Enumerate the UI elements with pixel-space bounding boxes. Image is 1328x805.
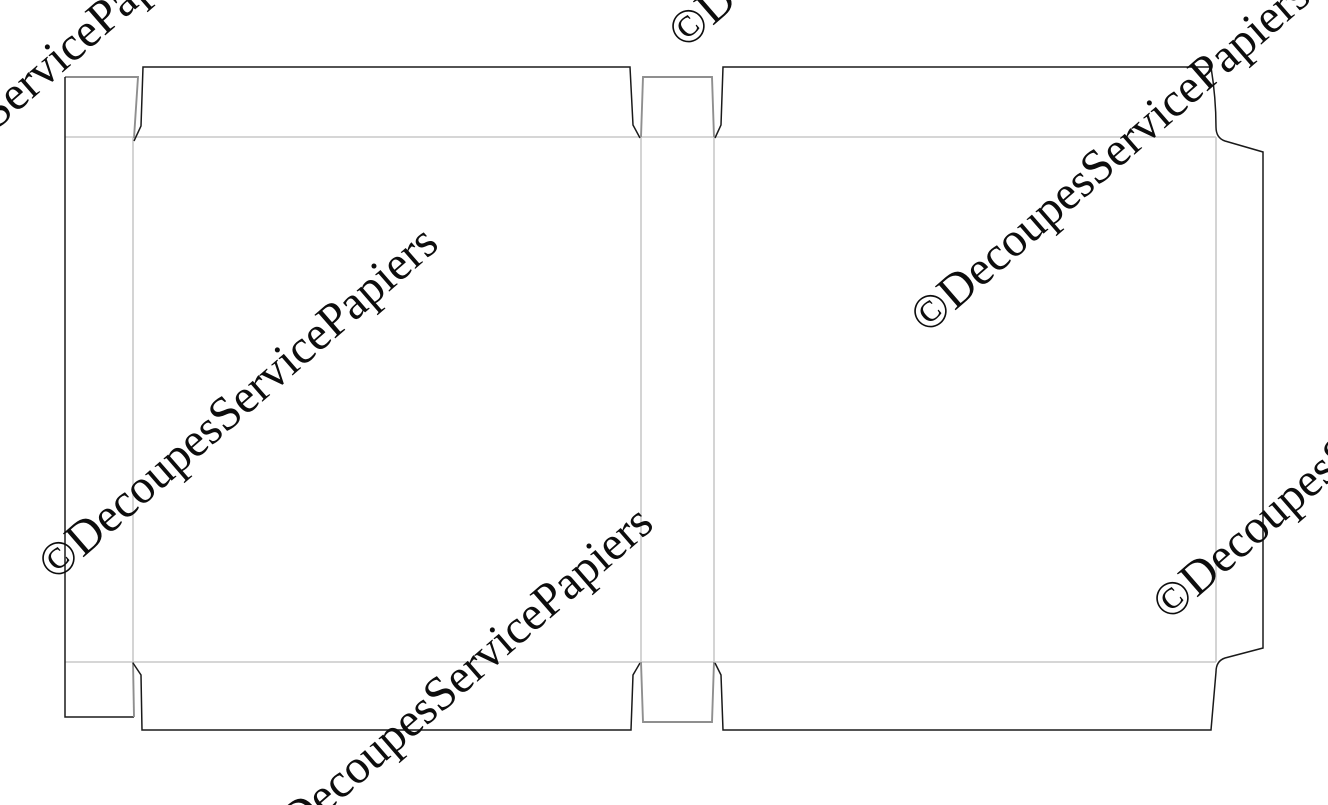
watermark-bottom: ©DecoupesServicePapiers — [242, 495, 662, 805]
watermark-right-panel: ©DecoupesServicePapiers — [899, 0, 1319, 343]
watermark-top-left: ©DecoupesServicePapiers — [0, 0, 218, 287]
right-panel-cut-outline — [715, 67, 1263, 730]
watermark-right-edge: ©DecoupesServicePapiers — [1141, 255, 1328, 630]
spine-top-flap-edge — [641, 77, 714, 137]
glue-strip-top-edge — [65, 77, 138, 138]
glue-strip-bottom-right-edge — [133, 662, 134, 717]
spine-bottom-flap-edge — [641, 662, 714, 722]
glue-strip-left-and-bottom-edge — [65, 77, 134, 717]
watermark-top-middle: ©DecoupesServicePapiers — [657, 0, 1077, 58]
dieline-svg: ©DecoupesServicePapiers ©DecoupesService… — [0, 0, 1328, 805]
watermark-left-panel: ©DecoupesServicePapiers — [27, 215, 447, 590]
box-template-canvas: ©DecoupesServicePapiers ©DecoupesService… — [0, 0, 1328, 805]
left-panel-top-cut — [134, 67, 640, 141]
